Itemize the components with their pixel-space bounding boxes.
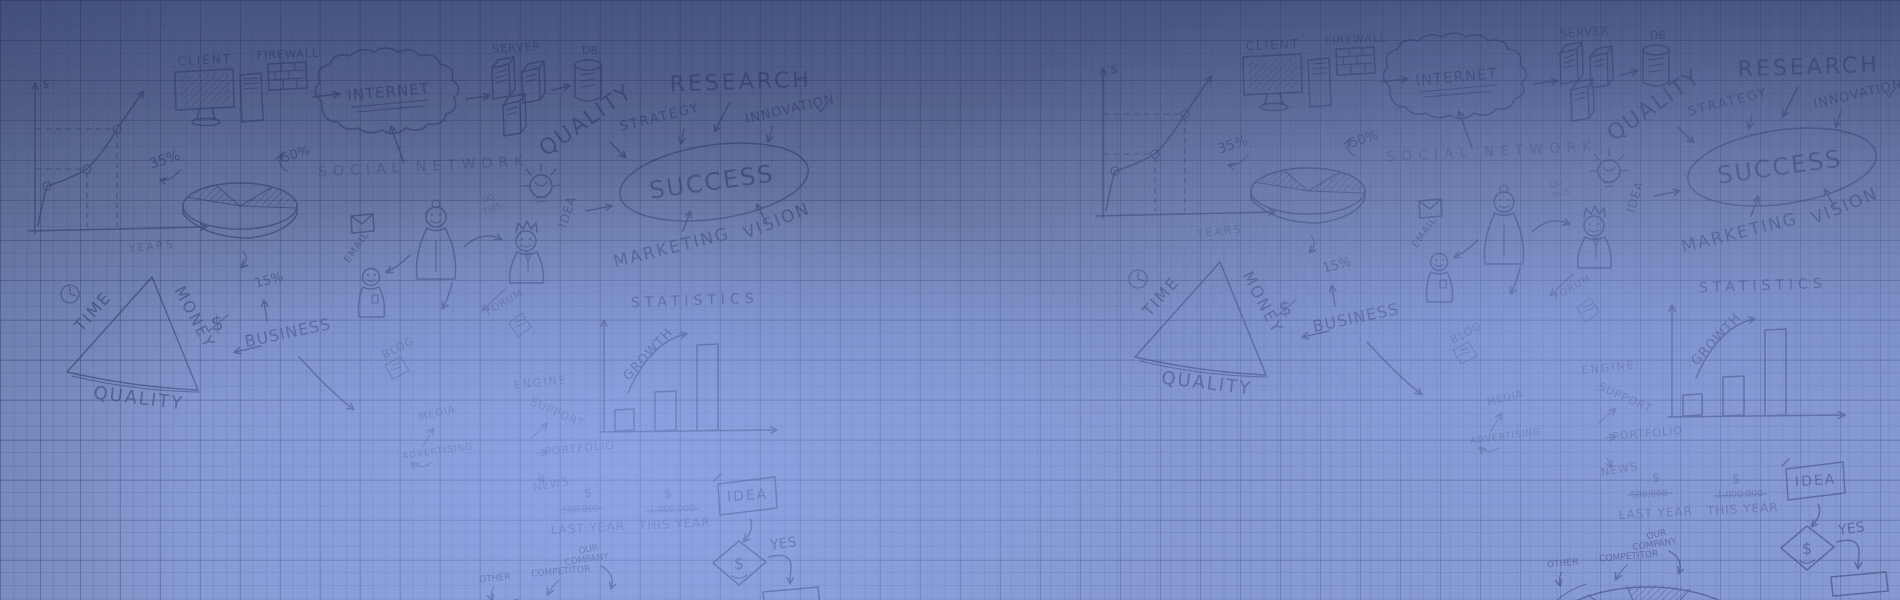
blog-label: BLOG (380, 334, 417, 362)
arrow-icon (768, 126, 773, 141)
arrow-icon (552, 86, 569, 90)
market-share-pie: OUR COMPANY COMPETITOR OTHER (470, 543, 684, 600)
king-figure-icon (510, 221, 544, 283)
flow-box (763, 587, 820, 600)
last-year-label: LAST YEAR (550, 519, 625, 537)
arrow-icon (466, 96, 489, 99)
arrow-icon (387, 255, 410, 272)
this-year-label: THIS YEAR (638, 515, 711, 533)
pct-15-label: 15% (253, 270, 285, 292)
time-label: TIME (70, 288, 115, 336)
axis-dollar-label: $ (42, 77, 50, 91)
business-label-group: BUSINESS (235, 301, 353, 409)
doodle-tile-repeat (1096, 24, 1900, 600)
arrow-icon (443, 283, 452, 308)
arrow-icon (715, 102, 730, 131)
dollar-label: $ (210, 310, 225, 335)
idea-flowchart: IDEA $ YES (713, 474, 820, 600)
do-this-note: DO THIS (481, 192, 502, 216)
yes-label: YES (768, 534, 797, 554)
firewall-icon: FIREWALL (257, 47, 339, 97)
arrow-icon (242, 251, 246, 267)
dollar-label: $ (584, 486, 592, 501)
arrow-icon (161, 170, 180, 180)
other-label: OTHER (479, 573, 511, 586)
arrow-icon (299, 357, 353, 409)
statistics-label: STATISTICS (631, 291, 759, 311)
competitor-label: COMPETITOR (531, 564, 591, 579)
news-label: NEWS (532, 475, 571, 494)
arrow-icon (769, 555, 791, 583)
bar-chart-icon: STATISTICS GROWTH (600, 291, 776, 432)
strategy-label: STRATEGY (619, 100, 702, 134)
arrow-icon (610, 142, 625, 157)
pct-35-label: 35% (147, 148, 182, 173)
quality-triangle-label: QUALITY (92, 383, 185, 415)
woman-figure-icon (416, 200, 455, 279)
arrow-icon (464, 236, 501, 247)
business-label: BUSINESS (243, 314, 333, 351)
arrow-icon (412, 463, 431, 467)
arrow-icon (491, 587, 494, 600)
arrow-icon (531, 424, 547, 438)
dollar-label: $ (734, 554, 744, 573)
success-label: SUCCESS (648, 159, 777, 204)
banner-background: $ YEARS 35% CLIENT (0, 0, 1900, 600)
media-label: MEDIA (418, 404, 457, 424)
arrow-icon (744, 519, 752, 541)
line-chart-icon: $ YEARS 35% (28, 77, 206, 255)
years-axis-label: YEARS (127, 238, 175, 256)
arrow-icon (601, 566, 612, 588)
pct-50-label: 50% (280, 143, 312, 166)
note-icon (509, 313, 531, 337)
blog-note: BLOG (380, 334, 417, 379)
arrow-icon (681, 129, 684, 143)
server-icon: SERVER (466, 39, 569, 136)
client-computer-icon: CLIENT (175, 52, 263, 126)
company-notes: ENGINE SUPPORT PORTFOLIO NEWS $ $ 500,00… (513, 373, 711, 537)
engine-label: ENGINE (513, 373, 568, 392)
arrow-icon (548, 580, 559, 594)
doodle-layer: $ YEARS 35% CLIENT (0, 0, 1900, 600)
firewall-label: FIREWALL (257, 47, 320, 62)
growth-label: GROWTH (620, 325, 676, 383)
internet-cloud-icon: INTERNET (315, 48, 458, 163)
social-network-label: SOCIAL NETWORK (318, 153, 530, 180)
arrow-icon (423, 429, 433, 446)
doodle-tile: $ YEARS 35% CLIENT (28, 39, 836, 600)
envelope-icon: EMAIL (342, 214, 374, 265)
person-figure-icon (359, 269, 385, 318)
support-label: SUPPORT (529, 395, 587, 430)
advertising-label: ADVERTISING (402, 442, 474, 462)
computer-tower-icon (240, 73, 263, 122)
arrow-icon (586, 206, 611, 211)
dollar-label: $ (664, 487, 672, 502)
database-icon: DB (575, 44, 601, 101)
db-label: DB (582, 44, 598, 57)
research-label: RESEARCH (669, 68, 812, 98)
forum-note: FORUM (483, 288, 531, 337)
idea-label: IDEA (556, 194, 579, 229)
idea-box-label: IDEA (727, 487, 769, 506)
arrow-icon (264, 301, 267, 321)
server-label: SERVER (492, 39, 542, 55)
portfolio-label: PORTFOLIO (544, 439, 616, 458)
lightbulb-icon (522, 164, 560, 202)
media-advertising-notes: MEDIA ADVERTISING (402, 404, 474, 467)
triangle-diagram-icon: TIME MONEY QUALITY $ (61, 277, 228, 415)
email-label: EMAIL (342, 230, 371, 265)
client-label: CLIENT (177, 52, 232, 69)
vision-label: VISION (741, 199, 814, 244)
pie-chart-icon: 15% (183, 183, 297, 292)
marketing-label: MARKETING (611, 224, 732, 272)
